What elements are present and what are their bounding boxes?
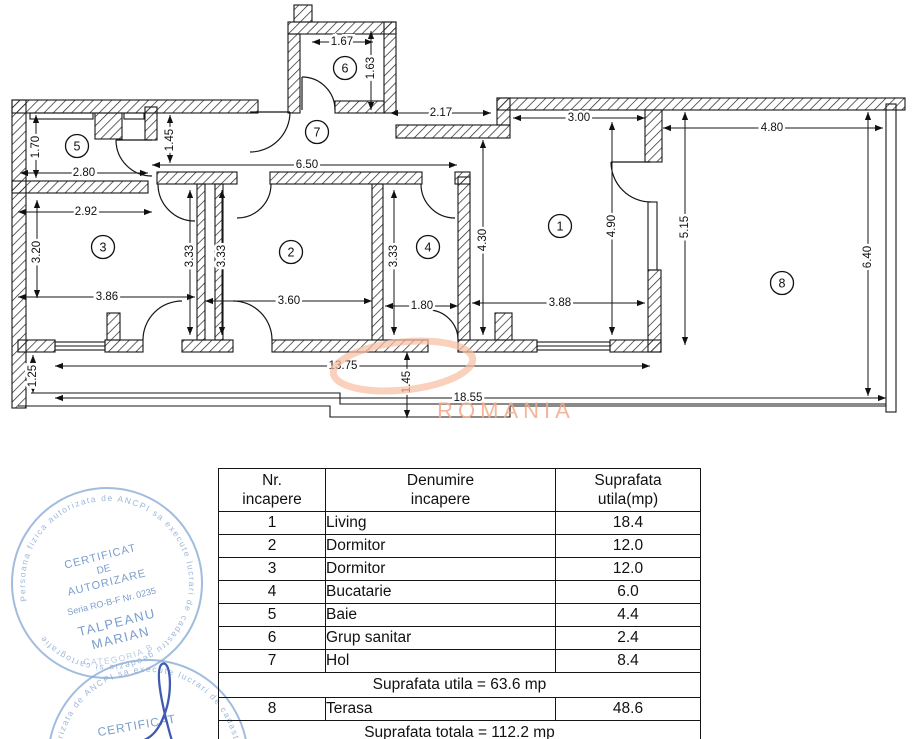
- total-row-cell: Suprafata totala = 112.2 mp: [219, 721, 701, 739]
- table-cell: 2: [219, 535, 326, 558]
- table-header-row: Nr.incapere Denumireincapere Suprafataut…: [219, 469, 701, 512]
- dimension-label: 6.40: [862, 246, 874, 268]
- dimension-lines-layer: [18, 31, 886, 418]
- watermark: ROMANIA: [331, 335, 575, 423]
- table-cell: Baie: [326, 604, 556, 627]
- dimension-label: 6.50: [296, 159, 318, 171]
- dimension-label: 1.67: [331, 36, 353, 48]
- table-cell: 4.4: [556, 604, 701, 627]
- col-header-suprafata: Suprafatautila(mp): [556, 469, 701, 512]
- dimension-label: 1.80: [411, 300, 433, 312]
- table-row: 6Grup sanitar2.4: [219, 627, 701, 650]
- dimension-label: 4.90: [606, 215, 618, 237]
- col-header-denumire: Denumireincapere: [326, 469, 556, 512]
- table-cell: 6: [219, 627, 326, 650]
- stamp-line: DE: [96, 563, 112, 577]
- table-cell: Living: [326, 512, 556, 535]
- room-rows: 1Living18.42Dormitor12.03Dormitor12.04Bu…: [219, 512, 701, 739]
- dimension-label: 3.00: [568, 112, 590, 124]
- floor-plan-drawing: 1.671.632.173.004.801.701.452.806.502.92…: [0, 0, 916, 460]
- scanned-floor-plan-page: 1.671.632.173.004.801.701.452.806.502.92…: [0, 0, 916, 739]
- room-number: 5: [74, 140, 81, 154]
- table-cell: 8: [219, 698, 326, 721]
- dimension-label: 2.17: [430, 107, 452, 119]
- dimension-label: 3.20: [31, 241, 43, 263]
- room-number: 4: [425, 241, 432, 255]
- dimension-label: 2.92: [75, 206, 97, 218]
- col-header-nr-incapere: Nr.incapere: [219, 469, 326, 512]
- table-cell: Terasa: [326, 698, 556, 721]
- total-row: Suprafata totala = 112.2 mp: [219, 721, 701, 739]
- table-cell: Dormitor: [326, 535, 556, 558]
- table-cell: 6.0: [556, 581, 701, 604]
- room-number: 2: [288, 246, 295, 260]
- dimension-label: 2.80: [73, 167, 95, 179]
- dimension-label: 1.70: [30, 136, 42, 158]
- dimension-label: 1.63: [365, 57, 377, 79]
- table-row: 5Baie4.4: [219, 604, 701, 627]
- dimension-label: 3.33: [388, 245, 400, 267]
- windows-and-parapets-layer: [18, 104, 896, 417]
- room-number: 3: [100, 241, 107, 255]
- table-cell: Dormitor: [326, 558, 556, 581]
- subtotal-row: Suprafata utila = 63.6 mp: [219, 673, 701, 698]
- table-cell: 12.0: [556, 558, 701, 581]
- dimension-label: 1.25: [27, 365, 39, 387]
- table-cell: 5: [219, 604, 326, 627]
- dimension-label: 4.30: [477, 229, 489, 251]
- table-cell: 18.4: [556, 512, 701, 535]
- dimension-label: 3.33: [184, 245, 196, 267]
- table-row: 2Dormitor12.0: [219, 535, 701, 558]
- table-cell: 8.4: [556, 650, 701, 673]
- table-row: 8Terasa48.6: [219, 698, 701, 721]
- dimension-label: 3.33: [216, 245, 228, 267]
- table-cell: 1: [219, 512, 326, 535]
- authorization-stamps: Persoana fizica autorizata de ANCPI sa e…: [0, 460, 250, 739]
- table-row: 4Bucatarie6.0: [219, 581, 701, 604]
- subtotal-row-cell: Suprafata utila = 63.6 mp: [219, 673, 701, 698]
- table-cell: 2.4: [556, 627, 701, 650]
- room-number: 7: [314, 126, 321, 140]
- table-cell: 48.6: [556, 698, 701, 721]
- plan-labels-layer: 1.671.632.173.004.801.701.452.806.502.92…: [27, 36, 874, 404]
- dimension-label: 3.86: [96, 291, 118, 303]
- table-cell: Hol: [326, 650, 556, 673]
- table-cell: 3: [219, 558, 326, 581]
- stamp-certificat-autorizare: Persoana fizica autorizata de ANCPI sa e…: [0, 468, 222, 698]
- table-cell: Grup sanitar: [326, 627, 556, 650]
- table-row: 1Living18.4: [219, 512, 701, 535]
- dimension-label: 3.88: [549, 297, 571, 309]
- dimension-label: 3.60: [278, 295, 300, 307]
- table-cell: 7: [219, 650, 326, 673]
- dimension-label: 5.15: [679, 216, 691, 238]
- watermark-text: ROMANIA: [437, 398, 575, 423]
- room-number: 8: [779, 277, 786, 291]
- table-cell: 12.0: [556, 535, 701, 558]
- room-number: 1: [557, 220, 564, 234]
- table-cell: 4: [219, 581, 326, 604]
- table-row: 3Dormitor12.0: [219, 558, 701, 581]
- dimension-label: 1.45: [164, 129, 176, 151]
- area-table: Nr.incapere Denumireincapere Suprafataut…: [218, 468, 701, 739]
- table-row: 7Hol8.4: [219, 650, 701, 673]
- room-number: 6: [342, 62, 349, 76]
- dimension-label: 4.80: [761, 122, 783, 134]
- table-cell: Bucatarie: [326, 581, 556, 604]
